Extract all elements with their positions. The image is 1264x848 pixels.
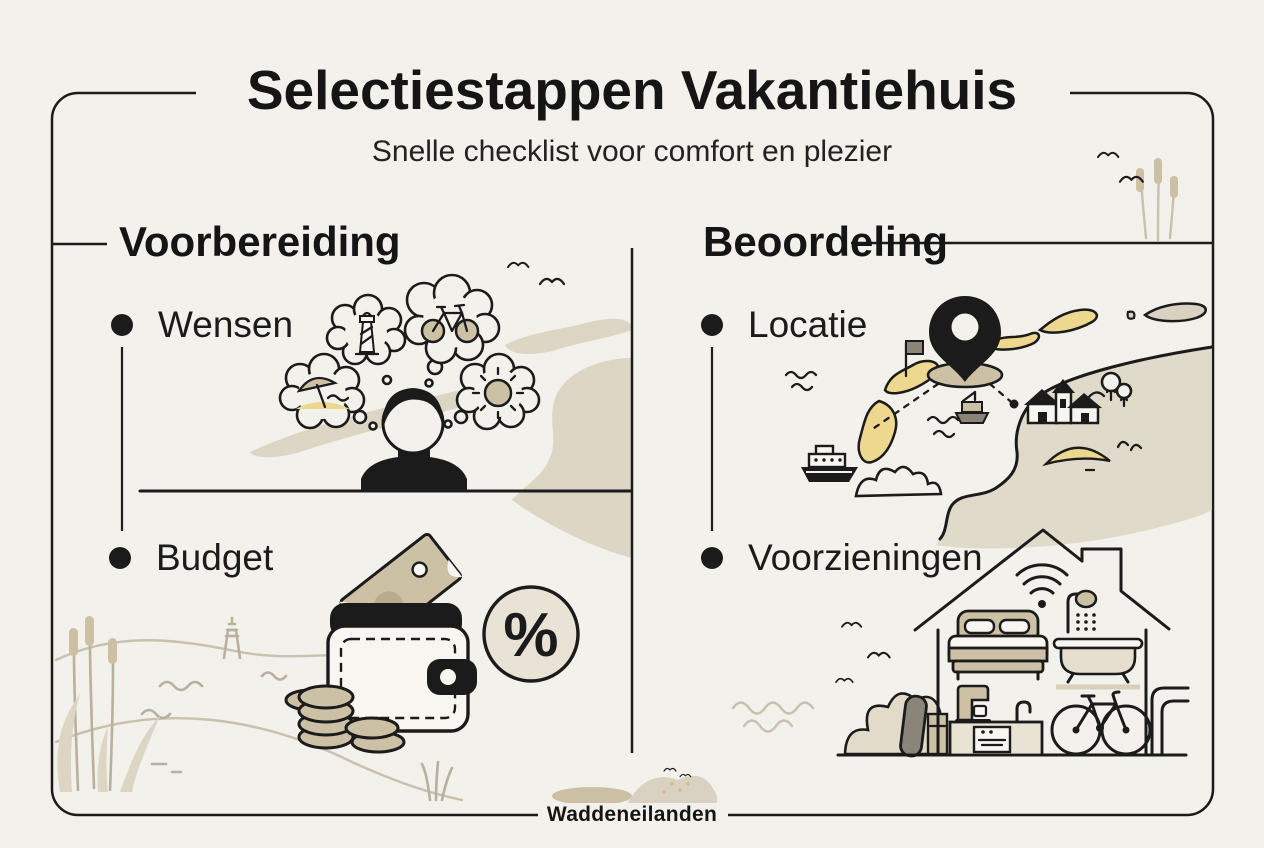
shower-icon [1068,591,1096,632]
percent-symbol: % [503,601,558,670]
list-item-label: Locatie [748,304,867,346]
thought-bubble-sun-icon [457,354,539,429]
page-subtitle: Snelle checklist voor comfort en plezier [0,133,1264,171]
page-title: Selectiestappen Vakantiehuis [0,58,1264,122]
bullet-icon [109,547,131,569]
column-heading-beoordeling: Beoordeling [703,219,948,265]
bullet-icon [701,547,723,569]
list-item-budget: Budget [109,537,273,579]
bullet-icon [701,314,723,336]
list-item-label: Wensen [158,304,293,346]
list-item-wensen: Wensen [111,304,293,346]
column-heading-voorbereiding: Voorbereiding [119,219,401,265]
thought-bubble-lighthouse-icon [327,295,405,364]
footer-label: Waddeneilanden [0,801,1264,829]
poster-illustrations: % [0,0,1264,848]
door-frames-icon [1152,688,1188,754]
map-pin-icon [928,296,1002,387]
thought-bubble-bicycle-icon [405,275,499,363]
ferry-icon [801,446,858,482]
coffee-maker-icon [955,686,991,723]
bed-icon [949,611,1047,679]
reeds-icon [57,616,160,792]
list-item-locatie: Locatie [701,304,867,346]
list-item-label: Voorzieningen [748,537,983,579]
bathtub-icon [1054,639,1142,687]
harbor-icon [956,392,988,423]
list-item-label: Budget [156,537,273,579]
percent-badge-icon: % [484,587,578,681]
list-item-voorzieningen: Voorzieningen [701,537,983,579]
grass-icon [422,762,452,800]
bicycle-icon [1052,692,1150,754]
bullet-icon [111,314,133,336]
infographic-poster: % [0,0,1264,848]
wifi-icon [1017,565,1067,608]
budget-illustration: % [286,533,578,752]
